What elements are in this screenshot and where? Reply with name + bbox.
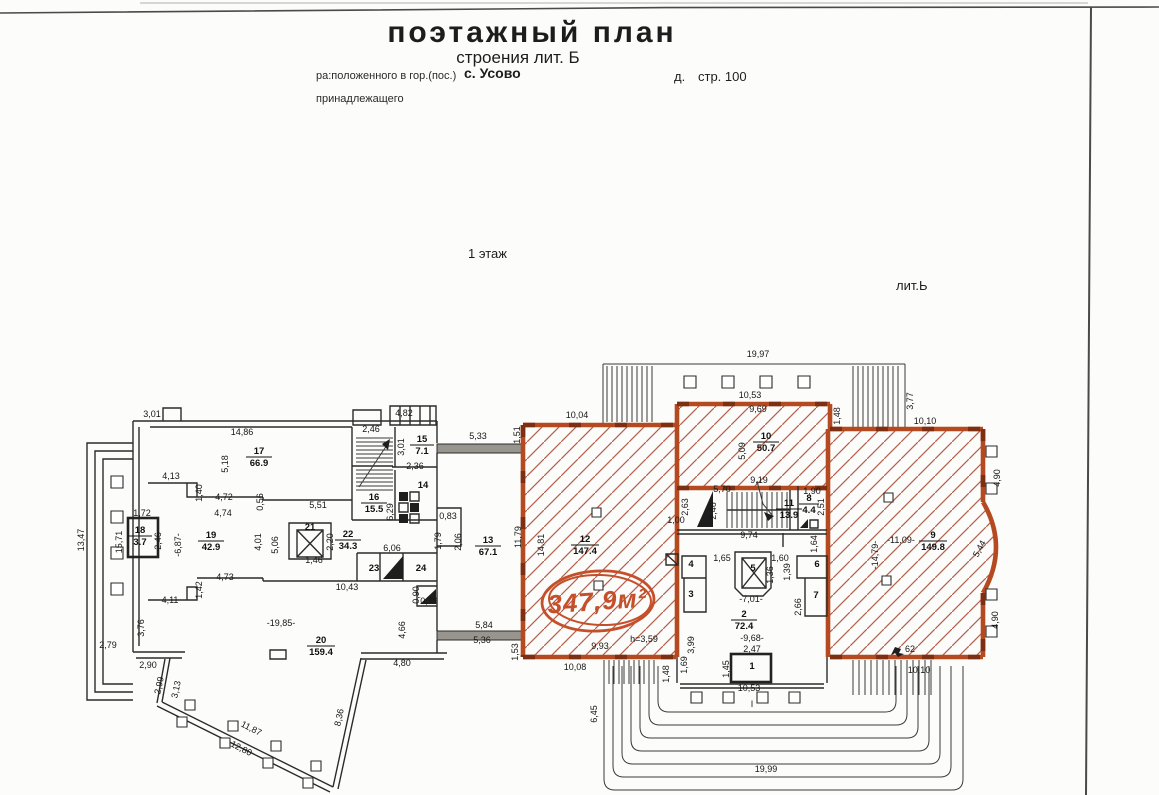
dim-label: 10,08 [564,662,587,672]
dim-label: -7,01- [739,594,763,604]
room-area: 72.4 [735,621,754,632]
room-area: 67.1 [479,547,498,558]
dim-label: -19,85- [267,618,296,628]
room-area: 4.4 [802,505,816,516]
dim-label: 9,93 [591,641,609,651]
dim-label: 1,42 [194,581,204,599]
dim-label: 4,66 [397,621,407,639]
dim-label: 4,72 [215,492,233,502]
dim-label: 2,79 [99,640,117,650]
dim-label: 5,18 [220,455,230,473]
paper-background [0,0,1159,795]
located-value: с. Усово [464,65,521,81]
dim-label: 10,10 [914,416,937,426]
room-number: 3 [688,589,693,600]
dim-label: 1,69 [679,656,689,674]
located-label: ра:положенного в гор.(пос.) [316,70,456,82]
dim-label: -9,68- [740,633,764,643]
dim-label: 3,01 [143,409,161,419]
dim-label: 5,06 [270,536,280,554]
room-area: 34.3 [339,541,358,552]
dim-label: 4,74 [214,508,232,518]
dim-label: 15,71 [114,531,124,554]
room-number: 7 [813,590,818,601]
section-mark: I [751,699,754,709]
dim-label: 19,97 [747,349,770,359]
dim-label: 1,64 [809,535,819,553]
room-number: 10 [761,431,772,442]
room-area: 147.4 [573,546,597,557]
dim-label: 1,60 [771,553,789,563]
dim-label: 2,63 [680,498,690,516]
dim-label: 4,11 [162,595,179,605]
dim-label: 1,53 [510,643,520,661]
hatch-room-12 [523,425,677,657]
dim-label: 1,46 [305,555,323,565]
page-title: поэтажный план [387,16,676,49]
dim-label: 3,77 [905,392,915,410]
dim-label: 1,00 [667,515,685,525]
dim-label: 14,86 [231,427,254,437]
dim-label: 5,51 [309,500,327,510]
room-number: 24 [416,563,427,574]
dim-label: 1,48 [832,407,842,425]
dim-label: 14,81 [536,534,546,557]
dim-label: 3,99 [686,636,696,654]
dim-label: 9,69 [749,404,767,414]
dim-label: 2,06 [453,533,463,551]
height-note: h=3,59 [630,634,658,644]
dim-label: 4,80 [393,658,411,668]
dim-label: 1,45 [721,660,731,678]
room-number: 6 [814,559,819,570]
dim-label: 5,09 [737,442,747,460]
dim-label: 10,53 [738,683,761,693]
dim-label: 11,79 [513,526,523,548]
dim-label: 13,47 [76,529,86,552]
dim-label: 6,06 [383,543,401,553]
dim-label: 1,39 [782,563,792,581]
room-number: 2 [741,609,746,620]
room-number: 15 [417,434,428,445]
dim-label: 5,84 [475,620,493,630]
dim-label: 2,36 [406,461,424,471]
dim-label: 2,20 [325,533,335,551]
dim-label: 4,13 [162,471,180,481]
room-number: 4 [688,559,694,570]
dim-label: 2,46 [153,532,163,550]
dim-label: 2,51 [816,498,826,516]
dim-label: 3,76 [136,619,146,637]
dim-label: 4,90 [992,469,1002,487]
dim-label: 1,48 [661,665,671,683]
dim-label: 1,72 [133,508,151,518]
floor-label: 1 этаж [468,246,507,261]
dim-label: 2,46 [708,502,718,520]
dim-label: 0,56 [255,493,265,511]
top-corridor-wall [437,444,523,453]
floor-plan-drawing: поэтажный план строения лит. Б ра:положе… [0,0,1159,795]
room-number: 19 [206,530,217,541]
dim-label: 2,66 [793,598,803,616]
dim-label: 0,79 [420,596,438,606]
dim-label: 5,70 [713,484,731,494]
room-area: 7.1 [415,446,429,457]
dim-label: 2,90 [139,660,157,670]
dim-label: 1,79 [433,532,443,550]
room-number: 11 [784,498,795,509]
dim-label: 2,46 [362,424,380,434]
dim-label: 10,10 [908,665,931,675]
dim-label: 3,01 [396,438,406,456]
room-area: 3.7 [133,537,146,548]
dim-label: 4,73 [216,572,234,582]
dim-label: 1,36 [765,566,775,584]
room-area: 15.5 [365,504,384,515]
dim-label: 6,29 [385,503,395,521]
room-number: 17 [254,446,265,457]
dim-label: 9,19 [750,475,768,485]
dim-label: 1,65 [713,553,731,563]
room-number: 20 [316,635,327,646]
dim-label: -11,09- [887,535,915,545]
dim-label: 1,40 [194,484,204,502]
building-label: стр. 100 [698,69,747,84]
house-label: д. [674,69,685,84]
room-number: 14 [418,480,429,491]
scanned-floor-plan-page: поэтажный план строения лит. Б ра:положе… [0,0,1159,795]
dim-label: 6,45 [589,705,599,723]
room-area: 66.9 [250,458,269,469]
dim-label: -14,79- [870,541,880,570]
room-number: 16 [369,492,380,503]
dim-label: 5,33 [469,431,487,441]
room-number: 13 [483,535,494,546]
dim-label: 4,01 [253,533,263,551]
room-number: 5 [750,563,756,574]
dim-label: 1,51 [512,426,522,444]
belongs-label: принадлежащего [316,93,404,105]
dim-label: 5,36 [473,635,491,645]
dim-label: 2,47 [743,644,761,654]
room-area: 159.4 [309,647,333,658]
room-number: 22 [343,529,354,540]
room-area: 13.9 [780,510,799,521]
room-area: 42.9 [202,542,221,553]
room-number: 23 [369,563,380,574]
room-number: 9 [930,530,935,541]
room-area: 149.8 [921,542,945,553]
dim-label: 4,90 [990,611,1000,629]
dim-label: 9,74 [740,530,758,540]
dim-label: 10,43 [336,582,359,592]
dim-label: 10,04 [566,410,589,420]
dim-label: 4,82 [395,408,413,418]
dim-label: 19,99 [755,764,778,774]
room-number: 12 [580,534,591,545]
lit-label: лит.Ь [896,278,928,293]
room-number: 1 [749,661,755,672]
room-number: 18 [135,525,146,536]
dim-label: 10,53 [739,390,762,400]
dim-label: -6,87- [173,533,183,557]
survey-mark-label: 62 [905,644,915,654]
room-area: 50.7 [757,443,776,454]
room-number: 21 [305,522,316,533]
dim-label: 0,83 [439,511,457,521]
dim-label: 1,90 [803,486,821,496]
